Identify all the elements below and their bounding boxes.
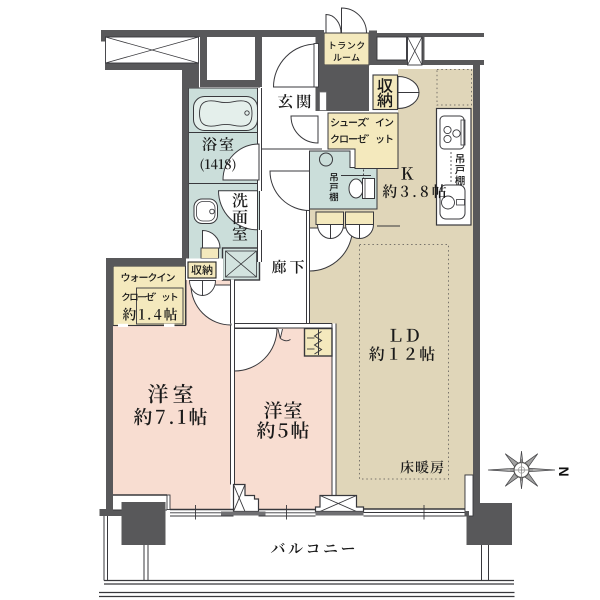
svg-text:N: N (556, 466, 572, 476)
